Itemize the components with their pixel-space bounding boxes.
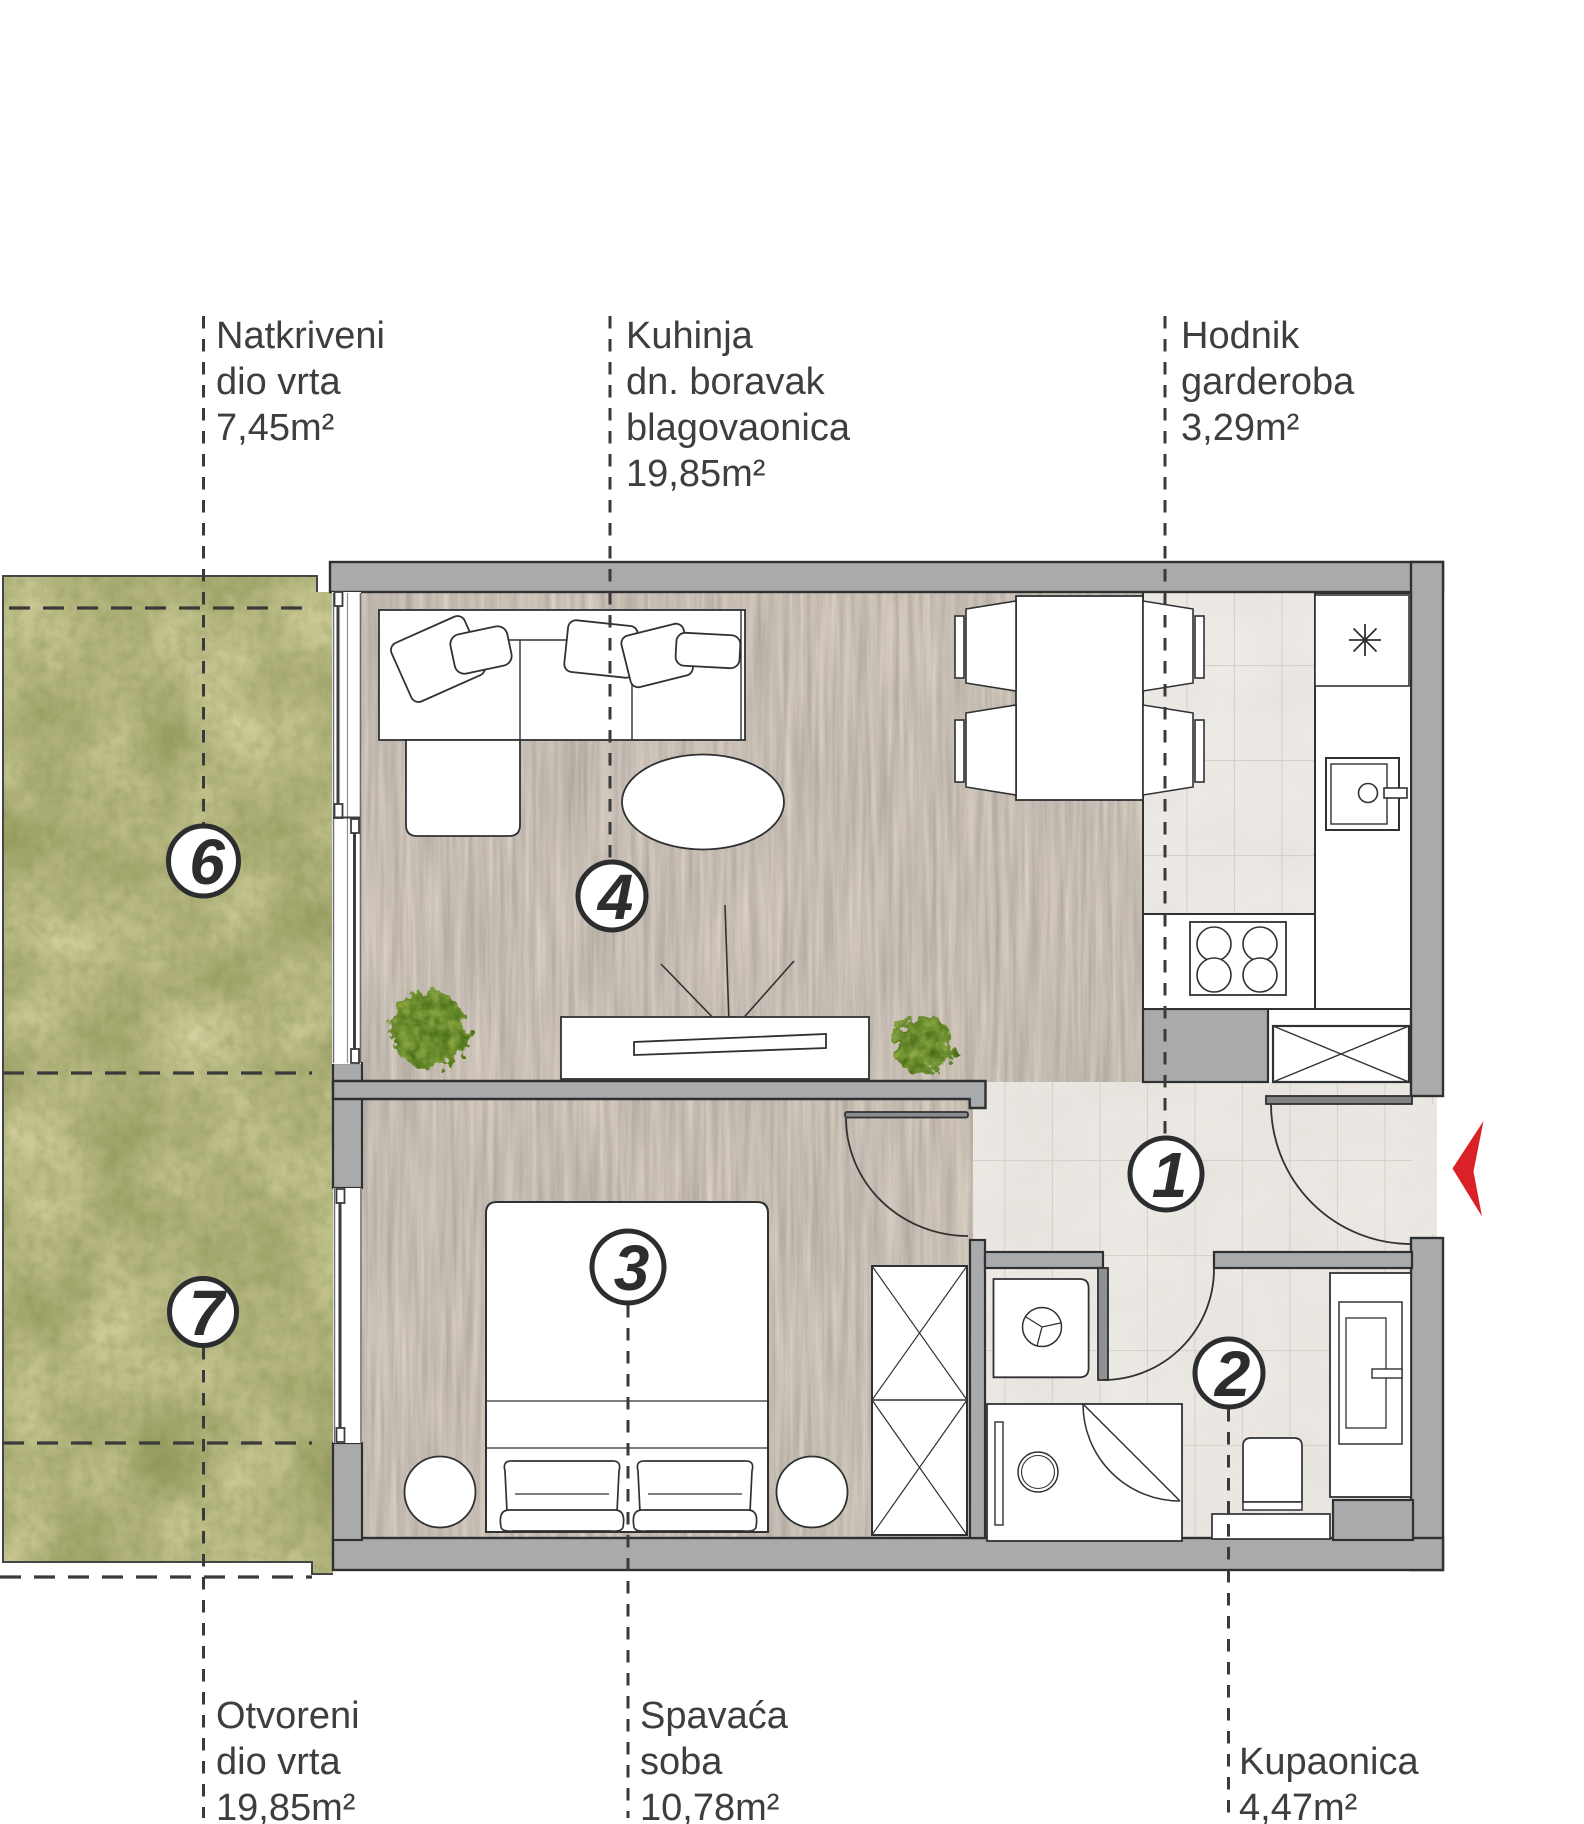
svg-text:4,47m²: 4,47m² bbox=[1239, 1787, 1357, 1824]
svg-text:Natkriveni: Natkriveni bbox=[216, 315, 385, 357]
svg-text:6: 6 bbox=[189, 826, 225, 898]
svg-text:Otvoreni: Otvoreni bbox=[216, 1695, 360, 1737]
svg-text:1: 1 bbox=[1152, 1139, 1188, 1211]
svg-text:Hodnik: Hodnik bbox=[1181, 315, 1300, 357]
svg-text:dn. boravak: dn. boravak bbox=[626, 361, 826, 403]
svg-text:19,85m²: 19,85m² bbox=[216, 1787, 355, 1824]
svg-text:10,78m²: 10,78m² bbox=[640, 1787, 779, 1824]
svg-text:4: 4 bbox=[596, 861, 634, 933]
svg-text:dio vrta: dio vrta bbox=[216, 1741, 341, 1783]
svg-text:7: 7 bbox=[189, 1277, 228, 1349]
svg-text:Kupaonica: Kupaonica bbox=[1239, 1741, 1419, 1783]
svg-text:Spavaća: Spavaća bbox=[640, 1695, 789, 1737]
svg-text:7,45m²: 7,45m² bbox=[216, 407, 334, 449]
svg-text:3,29m²: 3,29m² bbox=[1181, 407, 1299, 449]
svg-text:blagovaonica: blagovaonica bbox=[626, 407, 851, 449]
svg-text:3: 3 bbox=[614, 1232, 650, 1304]
svg-text:garderoba: garderoba bbox=[1181, 361, 1355, 403]
svg-text:Kuhinja: Kuhinja bbox=[626, 315, 754, 357]
svg-text:2: 2 bbox=[1214, 1338, 1251, 1410]
svg-text:soba: soba bbox=[640, 1741, 723, 1783]
svg-text:19,85m²: 19,85m² bbox=[626, 453, 765, 495]
svg-text:dio vrta: dio vrta bbox=[216, 361, 341, 403]
